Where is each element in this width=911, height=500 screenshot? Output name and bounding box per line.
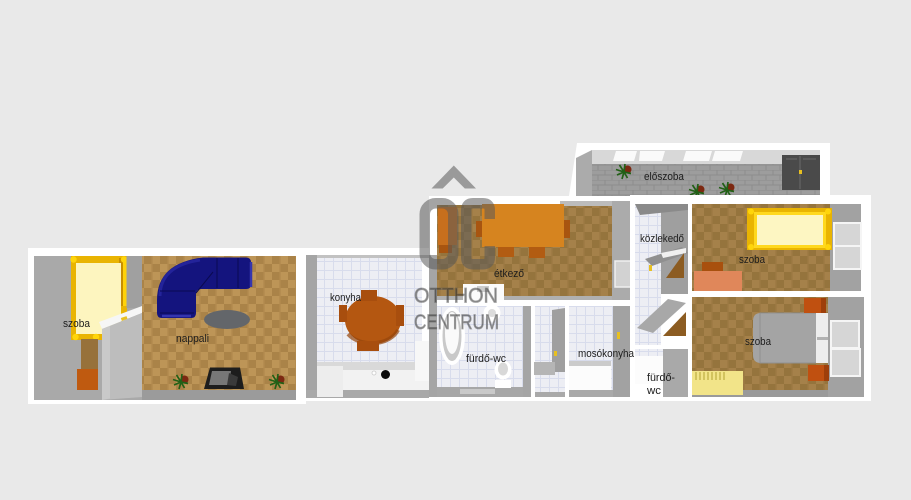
svg-text:konyha: konyha — [330, 292, 362, 304]
svg-text:fürdő-: fürdő- — [647, 372, 675, 384]
svg-text:szoba: szoba — [63, 318, 91, 330]
svg-text:mosókonyha: mosókonyha — [578, 348, 635, 360]
svg-text:közlekedő: közlekedő — [640, 233, 684, 245]
svg-text:előszoba: előszoba — [644, 171, 685, 183]
svg-text:fürdő-wc: fürdő-wc — [466, 353, 506, 365]
svg-text:OTTHON: OTTHON — [414, 284, 498, 308]
svg-text:étkező: étkező — [494, 268, 524, 280]
svg-text:szoba: szoba — [745, 336, 772, 348]
svg-text:nappali: nappali — [176, 333, 209, 345]
svg-text:szoba: szoba — [739, 254, 766, 266]
svg-text:CENTRUM: CENTRUM — [414, 310, 499, 334]
svg-text:wc: wc — [646, 385, 662, 397]
